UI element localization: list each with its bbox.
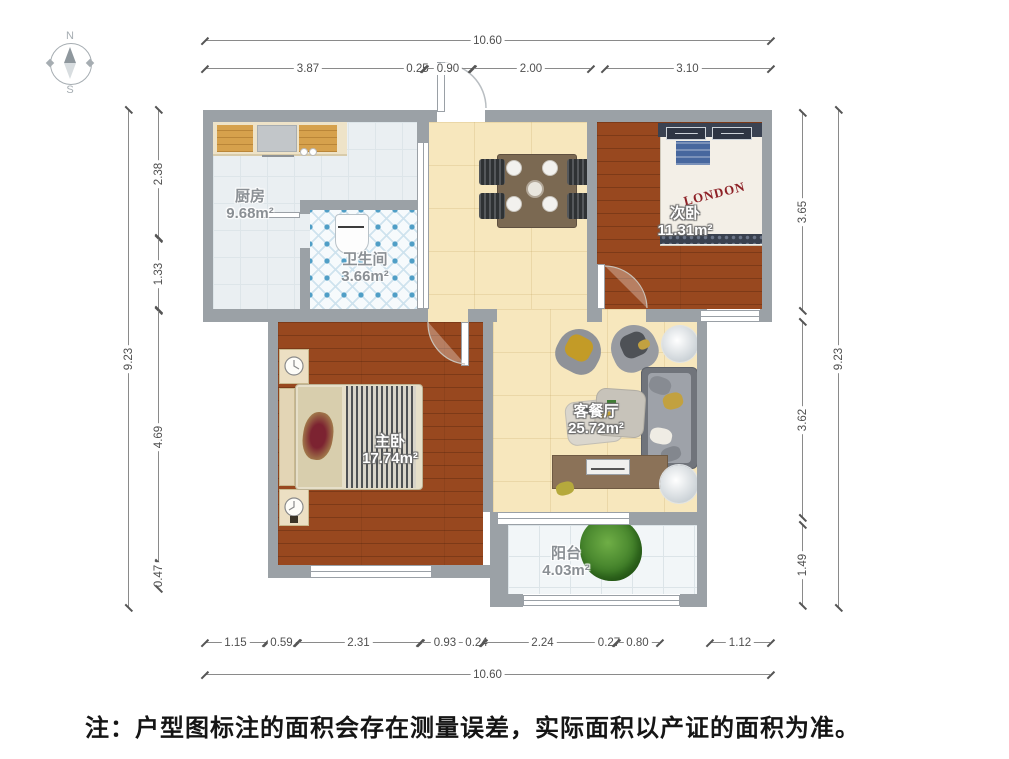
master-bed-headboard xyxy=(279,388,295,486)
wall-balcony-left xyxy=(490,512,508,607)
nightstand-top xyxy=(279,349,309,384)
dim-right-seg1: 3.62 xyxy=(802,322,803,517)
kitchen-handle xyxy=(262,155,294,157)
table-centerpiece xyxy=(528,182,542,196)
balcony-label: 阳台 4.03m² xyxy=(542,545,590,580)
kitchen-cabinet-left xyxy=(217,125,253,152)
wall-bath-left-a xyxy=(300,200,310,214)
dim-left-seg3: 0.47 xyxy=(158,563,159,588)
second-bedroom-name: 次卧 xyxy=(657,205,712,222)
wall-kitchen-stub xyxy=(417,122,429,142)
wall-balcony-band xyxy=(630,512,697,525)
wall-mid-band-d xyxy=(646,309,700,322)
dim-bottom-total: 10.60 xyxy=(205,674,770,675)
balcony-area: 4.03m² xyxy=(542,562,590,579)
wall-top-right xyxy=(485,110,772,122)
dim-bottom-seg7: 0.80 xyxy=(616,642,659,643)
dim-top-total: 10.60 xyxy=(205,40,770,41)
plate xyxy=(542,160,558,176)
wall-master-bottom-a xyxy=(268,565,310,578)
wall-master-right xyxy=(483,322,493,512)
compass-north-label: N xyxy=(66,30,74,42)
kitchen-stove xyxy=(257,125,297,152)
living-dining-name: 客餐厅 xyxy=(568,403,624,420)
dim-bottom-seg2: 2.31 xyxy=(297,642,420,643)
dining-chair xyxy=(479,193,505,219)
dim-right-total: 9.23 xyxy=(838,110,839,607)
pillow xyxy=(666,127,706,140)
second-bedroom-label: 次卧 11.31m² xyxy=(657,205,712,240)
wall-second-bedroom-left xyxy=(587,122,597,322)
plant-pot-bottom xyxy=(660,465,698,503)
dim-bottom-seg0: 1.15 xyxy=(205,642,266,643)
dim-left-seg2: 4.69 xyxy=(158,310,159,563)
compass-needle-north xyxy=(64,47,76,63)
wall-balcony-bottom-a xyxy=(490,594,523,607)
balcony-name: 阳台 xyxy=(542,545,590,562)
living-dining-label: 客餐厅 25.72m² xyxy=(568,403,624,438)
pillow xyxy=(712,127,752,140)
bathroom-label: 卫生间 3.66m² xyxy=(341,251,389,286)
balcony-window xyxy=(523,595,680,606)
kitchen-name: 厨房 xyxy=(226,188,274,205)
wall-top-left xyxy=(203,110,437,122)
plate xyxy=(506,160,522,176)
compass-needle-south xyxy=(64,63,76,79)
bathroom-name: 卫生间 xyxy=(341,251,389,268)
tv xyxy=(586,459,630,475)
balcony-sliding-door xyxy=(497,512,630,525)
second-bedroom-door-leaf xyxy=(597,264,605,309)
master-door-leaf xyxy=(461,322,469,366)
toilet-lid-line xyxy=(338,226,364,228)
plant-pot-top xyxy=(662,326,698,362)
wall-left-upper xyxy=(203,110,213,322)
dim-left-seg1: 1.33 xyxy=(158,238,159,310)
nightstand-bottom xyxy=(279,489,309,526)
kitchen-sink-knob2 xyxy=(309,148,317,156)
dim-bottom-seg1: 0.59 xyxy=(266,642,297,643)
dim-right-seg2: 1.49 xyxy=(802,525,803,605)
folded-blanket xyxy=(676,141,710,165)
kitchen-label: 厨房 9.68m² xyxy=(226,188,274,223)
wall-balcony-bottom-b xyxy=(680,594,707,607)
plate xyxy=(506,196,522,212)
kitchen-sink-knob xyxy=(300,148,308,156)
compass-south-label: S xyxy=(66,84,73,96)
dim-top-seg3: 2.00 xyxy=(472,68,590,69)
living-dining-area: 25.72m² xyxy=(568,420,624,437)
toilet xyxy=(335,214,369,254)
wall-living-right xyxy=(697,309,707,607)
disclaimer-note: 注：户型图标注的面积会存在测量误差，实际面积以产证的面积为准。 xyxy=(85,708,860,743)
wall-mid-band-a xyxy=(203,309,428,322)
compass-rose: N S xyxy=(40,30,100,96)
wall-right-upper xyxy=(762,110,772,322)
second-bedroom-window xyxy=(700,310,760,322)
wall-mid-band-b xyxy=(468,309,497,322)
dim-top-seg0: 3.87 xyxy=(205,68,411,69)
dining-chair xyxy=(479,159,505,185)
wall-master-left xyxy=(268,309,278,578)
dim-top-seg2: 0.90 xyxy=(424,68,472,69)
dim-bottom-seg5: 2.24 xyxy=(483,642,602,643)
dim-left-total: 9.23 xyxy=(128,110,129,607)
plate xyxy=(542,196,558,212)
master-bedroom-window xyxy=(310,565,432,578)
dim-bottom-seg8: 1.12 xyxy=(710,642,770,643)
master-bedroom-label: 主卧 17.74m² xyxy=(362,433,418,468)
dim-right-seg0: 3.65 xyxy=(802,113,803,310)
bathroom-area: 3.66m² xyxy=(341,268,389,285)
kitchen-area: 9.68m² xyxy=(226,205,274,222)
wall-bath-left-b xyxy=(300,248,310,309)
dim-left-seg0: 2.38 xyxy=(158,110,159,238)
master-bedroom-area: 17.74m² xyxy=(362,450,418,467)
kitchen-sliding-door xyxy=(417,142,429,309)
wall-mid-band-c xyxy=(587,309,602,322)
second-bedroom-area: 11.31m² xyxy=(657,222,712,239)
floorplan-canvas: N S LONDON xyxy=(0,0,1009,759)
master-bedroom-name: 主卧 xyxy=(362,433,418,450)
dim-top-seg4: 3.10 xyxy=(605,68,770,69)
wall-bath-top xyxy=(310,200,417,210)
wall-mid-band-e xyxy=(760,309,772,322)
